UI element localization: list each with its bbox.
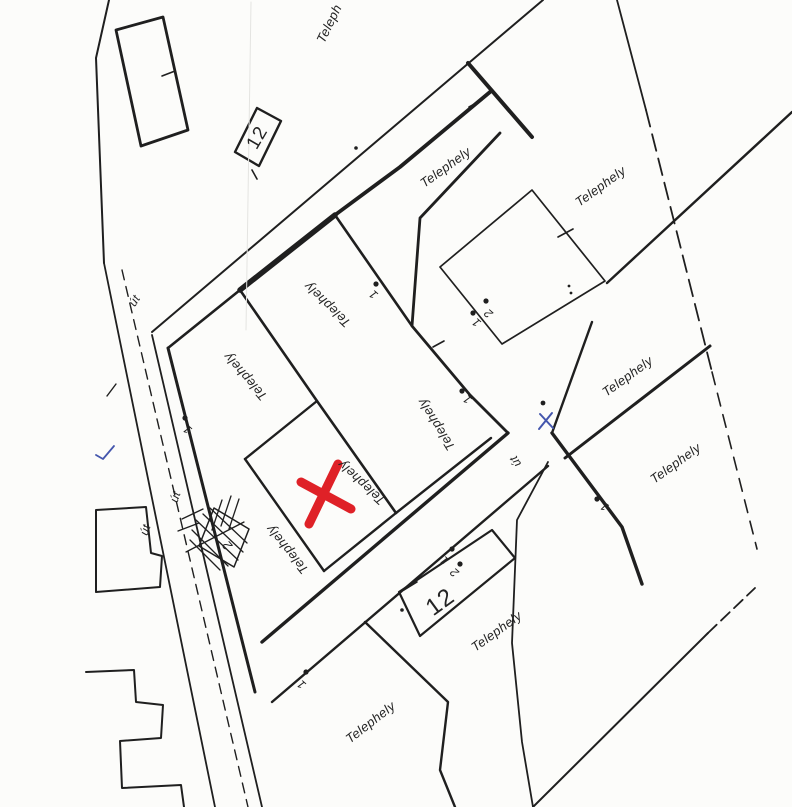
point-number: 2 — [481, 306, 496, 322]
east-boundary-dashed — [712, 372, 757, 549]
survey-tick — [162, 71, 175, 76]
cross-road-nw-edge — [262, 433, 508, 642]
survey-dot — [570, 292, 573, 295]
parcel-number-12: 12 — [421, 583, 460, 622]
survey-tick — [558, 229, 573, 237]
south-road-west-edge — [512, 462, 548, 807]
street-nw-edge — [152, 0, 543, 332]
plot-divider — [245, 401, 317, 459]
plot-label: Telephely — [343, 697, 399, 746]
blue-pen-mark — [539, 413, 553, 429]
point-number: 2 — [447, 565, 462, 581]
survey-dot — [182, 415, 187, 420]
plot-label-upside-down: Telephely — [262, 521, 311, 577]
stray-mark — [107, 384, 116, 396]
blue-check-mark — [96, 446, 114, 459]
survey-dot — [541, 401, 546, 406]
plot-label-upside-down: Telephely — [414, 395, 458, 454]
point-number: 1 — [460, 392, 474, 407]
plot-label-upside-down: Telephely — [300, 278, 353, 330]
east-boundary-dashed — [646, 110, 712, 372]
survey-dot — [457, 561, 462, 566]
scanned-cadastral-map-page: TelephTelephelyTelephelyTelephelyTelephe… — [0, 0, 792, 807]
stepped-parcel-outline — [96, 507, 162, 592]
east-boundary — [617, 0, 646, 110]
survey-dot — [303, 669, 308, 674]
south-road-east-edge — [552, 433, 642, 584]
survey-dot — [400, 608, 404, 612]
survey-dot — [470, 310, 475, 315]
right-block-west-edge — [552, 322, 592, 433]
plot-label: Telephely — [647, 439, 704, 486]
survey-dot — [568, 285, 571, 288]
stepped-parcel-outline — [86, 670, 184, 807]
plot-edge-extra-thick — [240, 215, 335, 290]
survey-dot — [459, 388, 464, 393]
plot-label: Telephely — [572, 162, 629, 209]
point-number: 2 — [219, 537, 236, 554]
plot-edge — [168, 290, 240, 348]
survey-dot — [594, 496, 599, 501]
plot-edge — [335, 215, 412, 326]
hatch-strokes — [178, 496, 247, 570]
plot-divider — [607, 112, 792, 283]
survey-dot — [449, 546, 454, 551]
southeast-boundary — [533, 633, 708, 807]
west-boundary-line — [96, 0, 109, 263]
point-number: 1 — [294, 677, 308, 692]
survey-tick — [433, 341, 444, 347]
plot-label: Telephely — [417, 143, 474, 190]
southeast-boundary-dashed — [708, 588, 755, 633]
plot-label: Telephely — [468, 607, 525, 654]
plot-label-upside-down: Telephely — [220, 349, 271, 404]
building-outline — [116, 17, 188, 146]
survey-dot — [483, 298, 488, 303]
left-road-east-edge — [152, 335, 262, 807]
road-label: út — [167, 489, 184, 504]
cadastral-map: TelephTelephelyTelephelyTelephelyTelephe… — [0, 0, 792, 807]
road-label: út — [506, 453, 524, 470]
plot-label-top-clipped: Teleph — [313, 2, 344, 45]
road-label: út — [137, 522, 154, 537]
survey-dot — [354, 146, 358, 150]
survey-tick — [252, 170, 257, 179]
point-number: 1 — [366, 287, 380, 302]
survey-dot — [373, 281, 378, 286]
plot-divider — [324, 513, 396, 571]
building-outline — [440, 190, 605, 344]
